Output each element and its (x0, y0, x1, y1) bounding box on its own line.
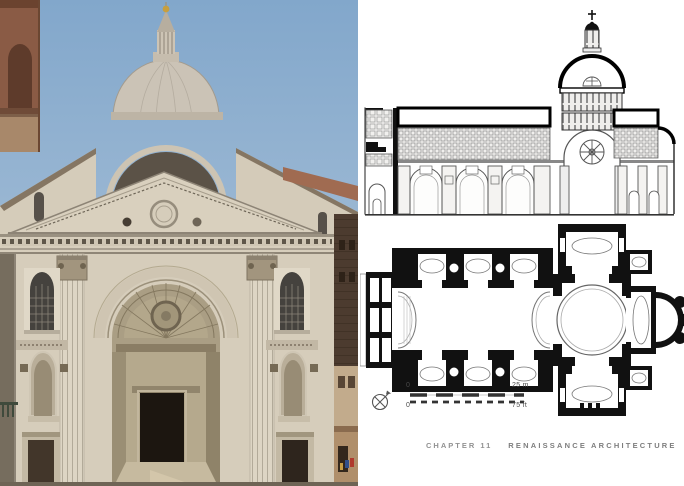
facade-portico-section (365, 108, 398, 214)
coffered-barrel-vault (398, 128, 550, 160)
pavement-shadow (0, 482, 358, 486)
neighbor-building (334, 214, 358, 486)
triumphal-arch (94, 266, 238, 486)
section-baseline (365, 214, 674, 216)
roof-section (398, 108, 550, 126)
scale-feet-max: 75 ft (512, 402, 527, 409)
crossing-plan (553, 274, 631, 366)
running-caption: CHAPTER 11 RENAISSANCE ARCHITECTURE (426, 441, 677, 450)
scale-meters-zero: 0 (406, 382, 410, 389)
chapter-label: CHAPTER 11 (426, 441, 492, 450)
facade-photograph (0, 0, 358, 486)
chapter-title: RENAISSANCE ARCHITECTURE (508, 441, 676, 450)
dome-circle (557, 285, 627, 355)
tympanum-oculus (151, 201, 177, 227)
campanile-tower (0, 0, 40, 152)
left-edge-wall (0, 254, 18, 486)
section-drawing (362, 4, 684, 226)
scale-meters-max: 25 m (512, 382, 529, 389)
scale-feet-zero: 0 (406, 402, 410, 409)
gold-finial (163, 6, 170, 13)
chancel-apse-plan (626, 250, 684, 390)
nave-plan (392, 248, 553, 392)
entablature (0, 234, 334, 254)
scale-bar: 0 25 m 0 75 ft (368, 382, 548, 418)
drum-upper-tier (562, 93, 622, 111)
lower-facade (0, 254, 334, 486)
transept-plan (558, 224, 626, 416)
north-arrow-compass-icon (368, 388, 394, 414)
book-page: 0 25 m 0 75 ft CHAPTER 11 RENAISSANCE AR… (0, 0, 684, 486)
